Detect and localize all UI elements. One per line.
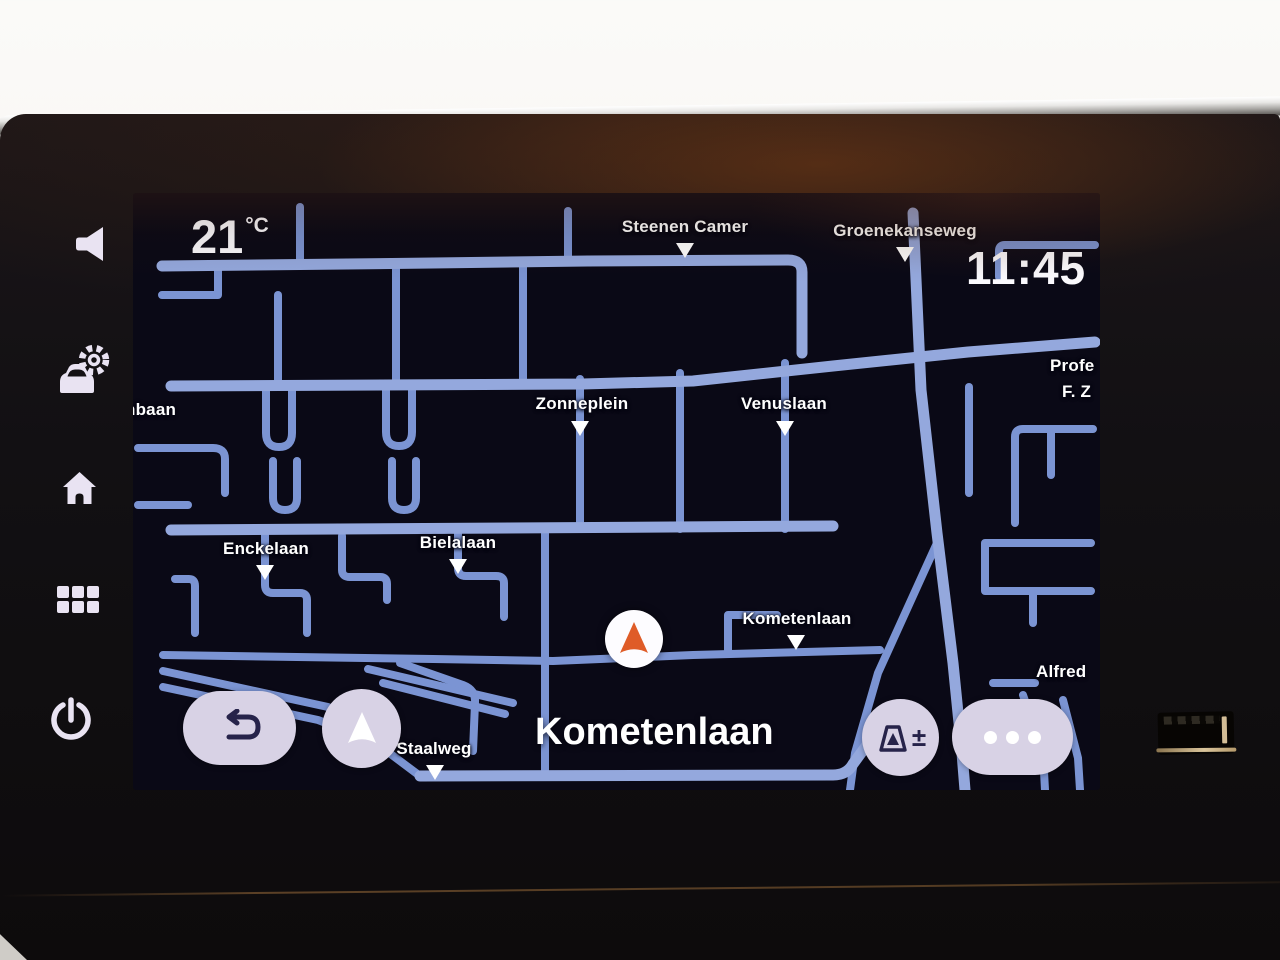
temperature-readout: 21°C: [191, 213, 267, 260]
street-label-profe: Profe: [1050, 356, 1094, 376]
navigation-arrow-icon: [342, 709, 382, 749]
power-button[interactable]: [50, 697, 92, 743]
photo-canvas: { "statusbar": { "temperature": "21", "t…: [0, 0, 1280, 960]
usb-pin: [1222, 716, 1228, 743]
street-label-staalweg: Staalweg: [396, 739, 471, 759]
speed-alert-button[interactable]: ±: [862, 699, 939, 776]
street-label-enckelaan: Enckelaan: [223, 539, 309, 559]
temperature-unit: °C: [245, 214, 269, 237]
back-button[interactable]: [183, 691, 296, 765]
street-label-nbaan: nbaan: [133, 400, 176, 420]
street-label-f-z: F. Z: [1062, 382, 1091, 402]
usb-contacts: [1164, 716, 1220, 725]
street-label-bielalaan: Bielalaan: [420, 533, 496, 553]
street-label-alfred: Alfred: [1036, 662, 1086, 682]
speaker-icon: [72, 224, 106, 264]
undo-arrow-icon: [217, 709, 263, 747]
car-gear-icon: [54, 340, 114, 398]
temperature-value: 21: [191, 210, 243, 263]
usb-port: [1158, 711, 1235, 755]
road-sign-icon: [875, 721, 911, 755]
street-label-kometenlaan: Kometenlaan: [743, 609, 852, 629]
usb-lip: [1156, 748, 1236, 753]
plus-minus-label: ±: [912, 727, 926, 748]
street-label-zonneplein: Zonneplein: [536, 394, 629, 414]
street-label-groenekanseweg: Groenekanseweg: [833, 221, 977, 241]
app-grid-icon: [57, 586, 99, 613]
more-options-button[interactable]: [952, 699, 1073, 775]
three-dots-icon: [984, 731, 1041, 744]
volume-button[interactable]: [72, 224, 106, 264]
home-button[interactable]: [62, 470, 97, 506]
vehicle-settings-button[interactable]: [54, 340, 114, 398]
car-arrow-icon: [615, 620, 653, 658]
infotainment-screen: Steenen Camer Groenekanseweg Zonneplein …: [133, 193, 1100, 790]
apps-button[interactable]: [57, 586, 99, 613]
street-label-steenen-camer: Steenen Camer: [622, 217, 748, 237]
car-position-marker: [605, 610, 663, 668]
power-icon: [50, 697, 92, 743]
home-icon: [62, 470, 97, 506]
street-label-venuslaan: Venuslaan: [741, 394, 827, 414]
clock: 11:45: [966, 245, 1086, 291]
current-street-banner: Kometenlaan: [535, 711, 774, 754]
navigation-button[interactable]: [322, 689, 401, 768]
